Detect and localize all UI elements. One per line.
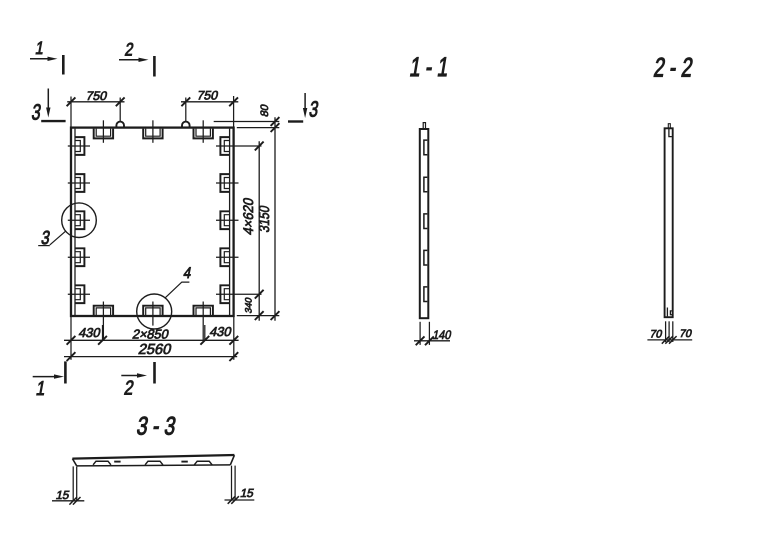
svg-text:3150: 3150 — [257, 204, 273, 233]
svg-text:15: 15 — [55, 488, 72, 502]
svg-text:15: 15 — [239, 486, 256, 500]
svg-text:3: 3 — [308, 97, 321, 122]
svg-text:1: 1 — [34, 378, 47, 400]
svg-text:4: 4 — [182, 265, 193, 282]
svg-text:80: 80 — [259, 103, 271, 118]
svg-text:750: 750 — [196, 88, 220, 102]
svg-text:1: 1 — [34, 38, 46, 58]
svg-text:430: 430 — [77, 325, 102, 340]
svg-text:3: 3 — [40, 228, 52, 249]
svg-text:2: 2 — [123, 378, 136, 400]
svg-text:70: 70 — [649, 329, 664, 341]
svg-text:1 - 1: 1 - 1 — [408, 52, 451, 82]
svg-text:70: 70 — [678, 328, 693, 340]
svg-text:340: 340 — [243, 296, 253, 314]
svg-text:140: 140 — [432, 328, 453, 342]
svg-text:4×620: 4×620 — [240, 196, 256, 236]
svg-text:3: 3 — [30, 100, 43, 125]
svg-text:3 - 3: 3 - 3 — [135, 413, 178, 441]
svg-text:750: 750 — [85, 89, 109, 103]
svg-text:2: 2 — [124, 39, 136, 59]
svg-text:2 - 2: 2 - 2 — [652, 53, 695, 83]
svg-text:2560: 2560 — [137, 342, 173, 358]
svg-text:430: 430 — [208, 324, 233, 339]
